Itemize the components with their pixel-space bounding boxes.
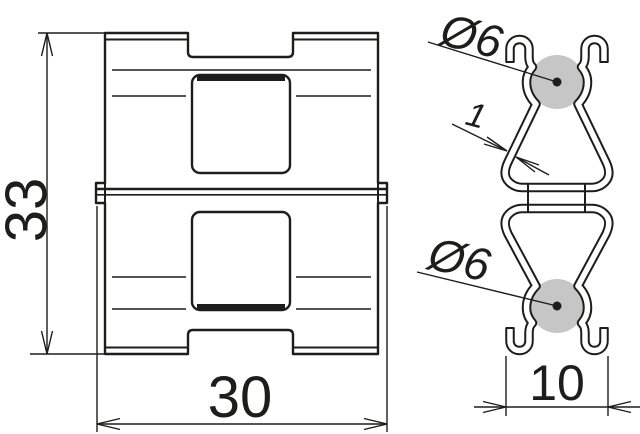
thickness-arrow-inner — [516, 157, 539, 172]
label-bottom-conductor-diameter: Ø6 — [422, 227, 496, 292]
technical-drawing-canvas: 33 30 10 Ø6 Ø6 1 — [0, 0, 640, 434]
lower-window — [192, 212, 290, 310]
upper-window — [192, 75, 290, 173]
clamp-technical-drawing: 33 30 10 Ø6 Ø6 1 — [0, 0, 640, 434]
dimension-height: 33 — [0, 33, 105, 354]
leader-dot-bottom — [553, 302, 562, 311]
dimension-width: 30 — [97, 206, 387, 432]
label-top-conductor-diameter: Ø6 — [434, 3, 508, 69]
dim-clamp-base-width-label: 10 — [529, 355, 585, 411]
dim-height-label: 33 — [0, 178, 59, 243]
front-view — [96, 33, 387, 354]
thickness-arrow-outer — [484, 137, 507, 151]
dimension-clamp-base-width: 10 — [474, 355, 640, 416]
leader-dot-top — [553, 78, 562, 87]
dim-width-label: 30 — [208, 365, 273, 430]
label-material-thickness: 1 — [462, 95, 490, 137]
